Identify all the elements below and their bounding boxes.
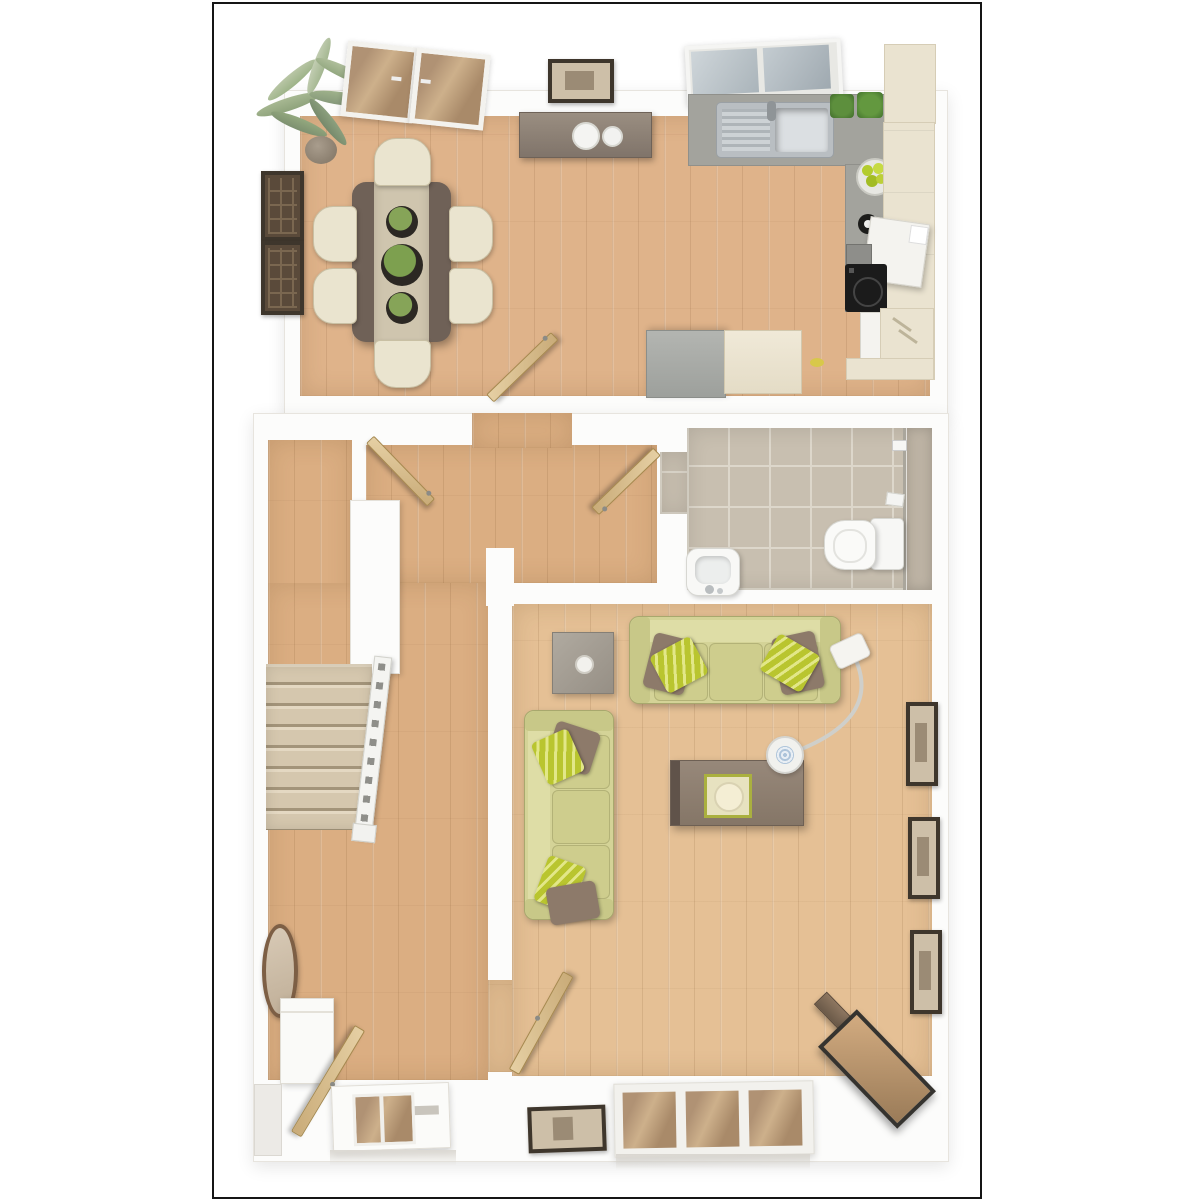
- wall-art-panel: [261, 241, 304, 315]
- table-tray: [704, 774, 752, 818]
- small-yellow-dish: [810, 358, 824, 367]
- lamp-base-center: [776, 746, 794, 764]
- centerpiece-planter: [386, 206, 418, 238]
- door-knob: [534, 1015, 541, 1022]
- gray-side-table: [552, 632, 614, 694]
- living-room-window: [613, 1080, 814, 1157]
- sideboard: [519, 112, 652, 158]
- basin-bowl: [695, 556, 731, 584]
- peninsula-cream-unit: [724, 330, 802, 394]
- plate: [602, 126, 623, 147]
- dining-chair-left: [313, 268, 357, 324]
- herb-pot: [857, 92, 883, 118]
- dining-chair-right: [449, 206, 493, 262]
- threshold-bathroom: [660, 452, 687, 514]
- french-door-right: [409, 47, 491, 130]
- door-handle: [391, 76, 401, 81]
- dining-chair-bottom: [374, 340, 431, 388]
- kitchen-tall-cabinet: [884, 44, 936, 124]
- front-door: [331, 1082, 451, 1152]
- kitchen-counter-end: [846, 358, 934, 380]
- sofa-arm: [630, 617, 650, 703]
- sink-bowl: [775, 108, 828, 152]
- shower-floor: [906, 428, 932, 590]
- sink-faucet: [767, 101, 776, 121]
- staircase-treads: [266, 664, 372, 830]
- basin-tap: [717, 588, 723, 594]
- arc-lamp-base: [766, 736, 804, 774]
- sofa-seat: [709, 643, 763, 701]
- french-door-left: [340, 40, 420, 123]
- appliance-tab: [908, 225, 928, 245]
- tray-bowl: [714, 782, 744, 812]
- dining-chair-left: [313, 206, 357, 262]
- exterior-shadow: [616, 1154, 810, 1170]
- glazing-bar: [379, 1096, 385, 1142]
- front-door-glazing: [352, 1092, 416, 1146]
- basin-tap: [705, 585, 714, 594]
- centerpiece-planter: [381, 244, 423, 286]
- door-knob: [542, 335, 549, 342]
- porch-step: [254, 1084, 282, 1156]
- toilet-roll-holder: [885, 492, 905, 507]
- sofa-seat: [552, 790, 610, 844]
- sink-drainer: [722, 109, 770, 151]
- floor-plan-canvas: [0, 0, 1200, 1200]
- window-pane: [623, 1092, 677, 1149]
- wall-stair-side: [350, 500, 400, 674]
- kitchen-lower-cabinet: [880, 308, 934, 362]
- window-pane: [691, 48, 759, 95]
- herb-pot: [830, 94, 854, 118]
- shower-door-handle: [892, 440, 907, 451]
- table-edge: [671, 761, 680, 825]
- door-handle: [420, 79, 430, 84]
- dining-chair-top: [374, 138, 431, 186]
- wash-basin: [686, 548, 740, 596]
- dining-wall-picture: [548, 59, 614, 103]
- induction-hob: [845, 264, 887, 312]
- stair-newel-post: [351, 823, 377, 843]
- bottom-wall-picture: [527, 1105, 607, 1154]
- art-grid: [268, 178, 297, 234]
- dishwasher: [860, 312, 882, 362]
- picture-art: [565, 71, 594, 90]
- wall-art-panel: [261, 171, 304, 241]
- hob-burner: [853, 277, 883, 307]
- frame-art: [919, 951, 931, 991]
- peninsula-gray-unit: [646, 330, 726, 398]
- toilet-seat-line: [833, 529, 867, 563]
- art-grid: [268, 248, 297, 308]
- frame-art: [915, 723, 927, 763]
- console-edge: [281, 1011, 333, 1013]
- exterior-shadow: [330, 1150, 456, 1166]
- plant-pot: [305, 136, 337, 164]
- hob-mark: [849, 268, 854, 273]
- kitchen-sink: [716, 102, 834, 158]
- plate: [572, 122, 600, 150]
- window-pane: [763, 45, 831, 92]
- threshold-living: [488, 980, 512, 1072]
- toilet-bowl: [824, 520, 876, 570]
- candle: [575, 655, 594, 674]
- picture-art: [553, 1117, 573, 1140]
- window-pane: [749, 1089, 803, 1146]
- living-wall-frame: [908, 817, 940, 899]
- wall-living-corner: [486, 548, 514, 606]
- frame-art: [917, 837, 929, 875]
- dining-table: [352, 182, 451, 342]
- living-wall-frame: [906, 702, 938, 786]
- threshold-dining-hall: [472, 413, 572, 448]
- window-pane: [686, 1091, 740, 1148]
- centerpiece-planter: [386, 292, 418, 324]
- living-wall-frame: [910, 930, 942, 1014]
- door-mat: [415, 1105, 439, 1115]
- dining-chair-right: [449, 268, 493, 324]
